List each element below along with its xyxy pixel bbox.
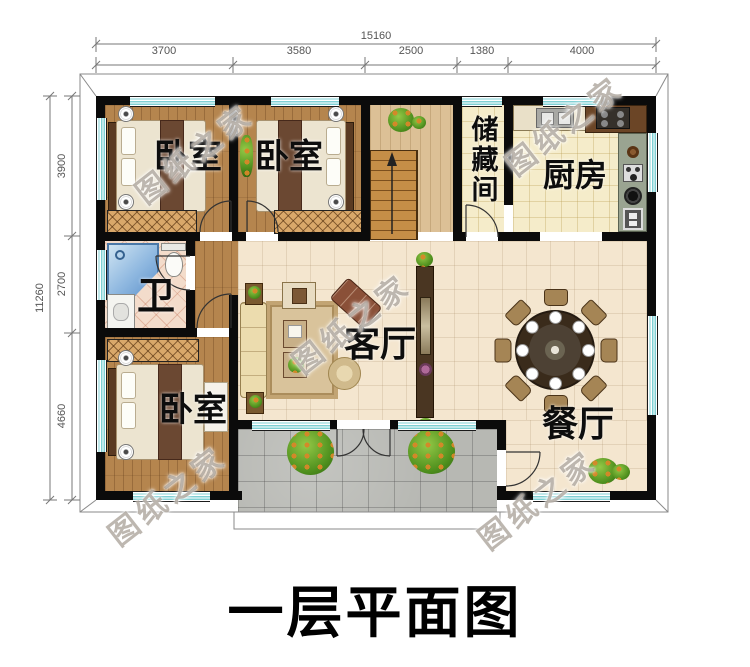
room-label-storage: 储藏间	[469, 115, 496, 205]
lazy-susan	[545, 340, 565, 360]
dim-left-seg-3: 4660	[56, 404, 68, 428]
window-porch-left	[252, 420, 330, 431]
plant-icon	[416, 252, 433, 267]
dining-chair-icon	[544, 289, 568, 306]
window-kitchen-right	[647, 133, 658, 192]
knob	[630, 174, 637, 181]
pillow-icon	[121, 372, 136, 399]
wall-hall-storage	[453, 105, 462, 232]
bush-icon	[287, 429, 334, 475]
basin	[113, 303, 129, 321]
burner	[617, 120, 624, 127]
knob	[626, 167, 631, 172]
window-bedroom3-left	[96, 360, 107, 452]
wardrobe-icon	[274, 210, 362, 234]
kitchen-side-counter-icon	[618, 133, 647, 232]
plant-icon	[612, 464, 630, 480]
dim-left-seg-1: 3900	[56, 154, 68, 178]
window-bath-left	[96, 250, 107, 300]
room-label-bedroom-top-mid: 卧室	[255, 140, 323, 174]
plate-icon	[549, 377, 562, 390]
toilet-tank	[161, 243, 186, 251]
dim-left-seg-2: 2700	[56, 272, 68, 296]
plant-pot-icon	[245, 283, 263, 305]
shower-drain	[115, 250, 125, 260]
window-dining-right	[647, 316, 658, 415]
porch-step	[234, 512, 500, 529]
page-title: 一层平面图	[0, 568, 750, 649]
wardrobe-icon	[107, 210, 197, 234]
pillow-icon	[326, 158, 341, 186]
dim-top-seg-2: 3580	[287, 45, 311, 57]
pillow-icon	[326, 127, 341, 155]
wall-bedrooms-bottom	[96, 232, 200, 241]
flower-icon	[419, 363, 432, 376]
bath-sink-icon	[107, 294, 135, 330]
stove-icon	[623, 164, 643, 182]
room-label-dining: 餐厅	[542, 406, 614, 442]
plant-icon	[412, 116, 426, 129]
sofa-icon	[240, 302, 267, 398]
dining-chair-icon	[495, 339, 512, 363]
window-bedroom1-top	[130, 96, 215, 107]
appliance-panel	[629, 213, 637, 219]
window-porch-right	[398, 420, 476, 431]
plant-icon	[249, 395, 262, 408]
room-label-bedroom-bottom: 卧室	[159, 393, 227, 427]
bedside-lamp-icon	[328, 106, 344, 122]
bedside-lamp-icon	[118, 350, 134, 366]
wall-bedrooms-bottom	[278, 232, 370, 241]
bedside-lamp-icon	[118, 444, 134, 460]
bedside-lamp-icon	[328, 194, 344, 210]
plant-icon	[388, 108, 414, 132]
wall-bedrooms-bottom	[232, 232, 246, 241]
appliance-panel	[629, 221, 637, 226]
room-label-kitchen: 厨房	[543, 159, 607, 191]
dim-top-seg-5: 4000	[570, 45, 594, 57]
burner	[617, 111, 624, 118]
wall-storage-bottom	[453, 232, 466, 241]
toilet-icon	[165, 252, 183, 277]
wall-bath-bottom	[96, 328, 197, 337]
pillow-icon	[121, 127, 136, 155]
plate-icon	[549, 311, 562, 324]
bedside-lamp-icon	[118, 194, 134, 210]
dim-top-seg-1: 3700	[152, 45, 176, 57]
wall-porch-right	[497, 420, 506, 450]
floor-porch	[238, 429, 497, 512]
wall-bedroom-hall	[361, 105, 370, 232]
knob	[635, 167, 640, 172]
floorplan-page: 15160 3700 3580 2500 1380 4000 11260 390…	[0, 0, 750, 667]
appliance-icon	[623, 208, 643, 230]
armchair-icon	[282, 282, 316, 309]
dim-top-seg-4: 1380	[470, 45, 494, 57]
wall-kitchen-bottom	[498, 232, 540, 241]
dim-left-total: 11260	[34, 283, 46, 313]
bush-icon	[408, 429, 455, 474]
pillow-icon	[121, 402, 136, 429]
wall-kitchen-bottom	[602, 232, 656, 241]
window-bedroom2-top	[271, 96, 339, 107]
dining-chair-icon	[601, 339, 618, 363]
plant-pot-icon	[246, 392, 264, 414]
wok-burner-icon	[624, 187, 642, 205]
wall-bath-right	[186, 241, 195, 256]
dim-top-total: 15160	[361, 30, 392, 42]
dim-top-seg-3: 2500	[399, 45, 423, 57]
room-label-bath: 卫	[137, 278, 175, 316]
plant-icon	[248, 286, 261, 299]
tv-cabinet-icon	[416, 266, 434, 418]
pot-icon	[627, 146, 639, 158]
stairs-icon	[370, 150, 418, 240]
window-storage-top	[462, 96, 502, 107]
tv-icon	[420, 297, 431, 355]
plate-icon	[582, 344, 595, 357]
window-bedroom1-left	[96, 118, 107, 200]
plate-icon	[516, 344, 529, 357]
armchair-cushion	[292, 288, 307, 304]
bedside-lamp-icon	[118, 106, 134, 122]
